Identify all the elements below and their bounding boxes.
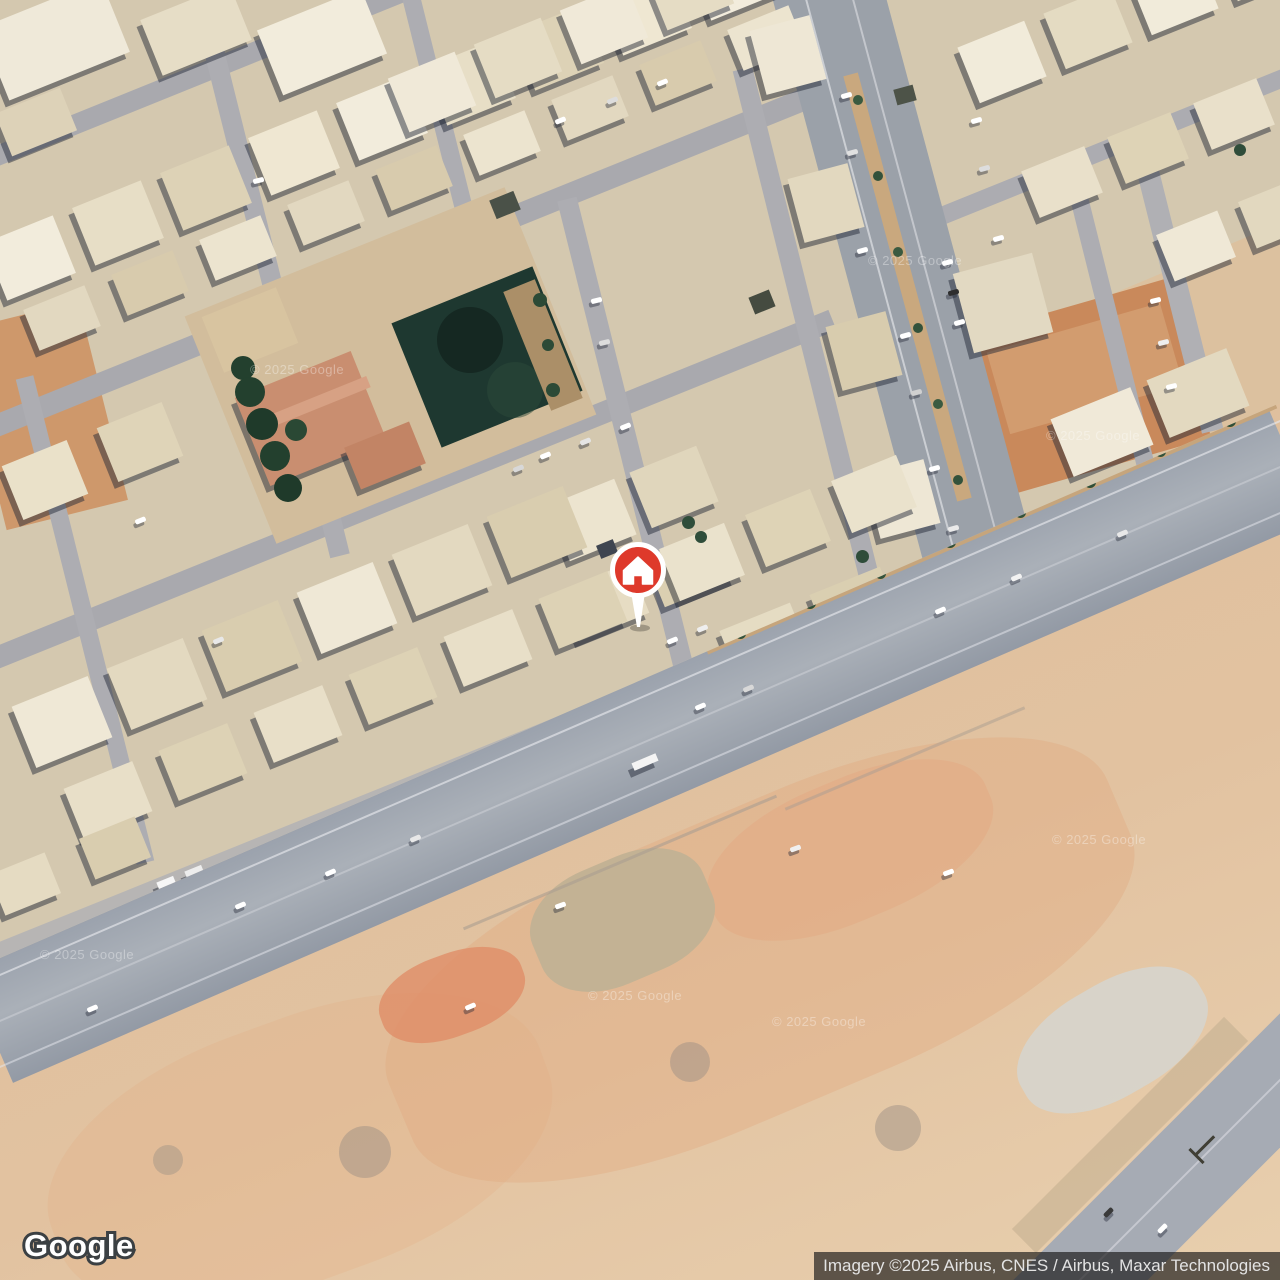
ground-spot (153, 1145, 183, 1175)
building (248, 110, 340, 195)
building (0, 0, 130, 101)
home-marker[interactable] (606, 538, 670, 634)
car (696, 624, 708, 633)
palm-tree (260, 441, 290, 471)
car (539, 451, 551, 460)
building (349, 647, 438, 725)
google-logo[interactable]: Google (24, 1228, 134, 1264)
building (551, 75, 629, 141)
building (107, 638, 208, 730)
map-canvas[interactable]: © 2025 Google© 2025 Google© 2025 Google©… (0, 0, 1280, 1280)
car (970, 116, 982, 124)
building (1129, 0, 1218, 35)
car (512, 464, 524, 473)
park-tree (546, 383, 560, 397)
building (111, 250, 189, 316)
median-tree (953, 475, 963, 485)
building (202, 600, 303, 692)
park-tree (542, 339, 554, 351)
tree (695, 531, 707, 543)
building (72, 180, 164, 265)
palm-tree (274, 474, 302, 502)
tree (856, 550, 869, 563)
tree (682, 516, 695, 529)
dark-roof (748, 290, 775, 315)
median-tree (913, 323, 923, 333)
building (444, 609, 533, 687)
building (159, 723, 248, 801)
attribution-bar: Imagery ©2025 Airbus, CNES / Airbus, Max… (814, 1252, 1280, 1280)
building (0, 852, 61, 915)
building (23, 285, 101, 351)
building (287, 180, 365, 246)
park-tree (533, 293, 547, 307)
tree (1234, 144, 1246, 156)
building (392, 524, 493, 616)
building (1043, 0, 1132, 69)
building (0, 215, 76, 300)
car (978, 164, 990, 172)
ground-spot (875, 1105, 921, 1151)
palm-tree (246, 408, 278, 440)
building (639, 40, 717, 106)
building (257, 0, 387, 95)
car (134, 516, 146, 525)
median-tree (933, 399, 943, 409)
median-tree (893, 247, 903, 257)
median-tree (873, 171, 883, 181)
car (579, 437, 591, 446)
palm-tree (285, 419, 307, 441)
palm-tree (235, 377, 265, 407)
building (957, 21, 1046, 104)
median-tree (853, 95, 863, 105)
car (992, 234, 1004, 242)
building (297, 562, 398, 654)
building (1215, 0, 1280, 1)
ground-spot (670, 1042, 710, 1082)
building (463, 110, 541, 176)
ground-spot (339, 1126, 391, 1178)
attribution-text: Imagery ©2025 Airbus, CNES / Airbus, Max… (823, 1256, 1270, 1276)
building (745, 489, 831, 567)
park-canopy (437, 307, 503, 373)
building (254, 685, 343, 763)
